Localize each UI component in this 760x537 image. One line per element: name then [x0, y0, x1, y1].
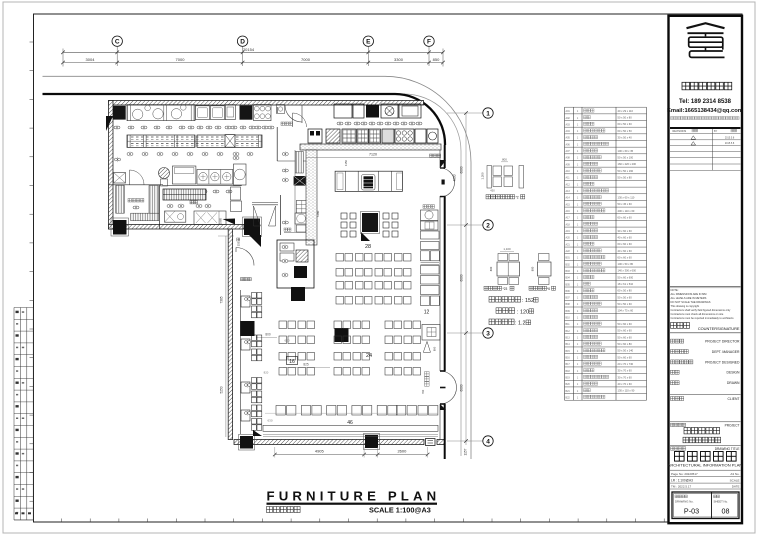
svg-text:30 x 50 x 40: 30 x 50 x 40 [618, 136, 633, 140]
svg-text:50 x 60 x 600: 50 x 60 x 600 [618, 275, 634, 279]
svg-text:100 x 50 x 80: 100 x 50 x 80 [618, 262, 634, 266]
svg-text:A05: A05 [566, 137, 571, 140]
svg-text:NOTE:: NOTE: [671, 288, 679, 292]
svg-text:FURNITURE PLAN: FURNITURE PLAN [267, 488, 441, 503]
svg-text:B05: B05 [566, 283, 571, 286]
svg-text:DESIGN: DESIGN [727, 371, 741, 375]
svg-text:30 x 70 x 60: 30 x 70 x 60 [618, 375, 633, 379]
svg-text:790: 790 [421, 389, 425, 394]
svg-text:46: 46 [347, 420, 353, 426]
svg-text:A02: A02 [566, 117, 571, 120]
svg-text:B07: B07 [566, 297, 571, 300]
svg-text:F: F [427, 39, 431, 46]
svg-text:60 x 50 x 50: 60 x 50 x 50 [618, 129, 633, 133]
svg-text:140 x 300 x 600: 140 x 300 x 600 [618, 269, 637, 273]
svg-text:A19: A19 [566, 230, 571, 233]
svg-text:533: 533 [237, 241, 241, 246]
svg-text:800: 800 [265, 333, 271, 337]
svg-text:LR : 1:100@A3: LR : 1:100@A3 [671, 478, 693, 482]
svg-text:A18: A18 [566, 223, 571, 226]
svg-text:Contractors must check all dim: Contractors must check all dimensions on… [671, 312, 724, 316]
svg-text:16: 16 [289, 359, 295, 365]
svg-text:800: 800 [531, 266, 535, 271]
svg-text:*23: *23 [503, 287, 508, 291]
svg-text:4: 4 [486, 438, 490, 445]
svg-text:4000: 4000 [453, 174, 457, 181]
svg-text:50 x 50 x 140: 50 x 50 x 140 [618, 349, 634, 353]
svg-text:50 x 60 x 60: 50 x 60 x 60 [618, 322, 633, 326]
svg-text:A16: A16 [566, 210, 571, 213]
svg-text:: 1.2: : 1.2 [515, 321, 526, 327]
svg-text:1157: 1157 [464, 448, 468, 455]
svg-text:800: 800 [502, 157, 507, 161]
svg-text:A15: A15 [566, 203, 571, 206]
svg-text:40 x 29 x 110: 40 x 29 x 110 [618, 109, 634, 113]
svg-text:6000: 6000 [460, 274, 464, 281]
svg-text:7385: 7385 [220, 296, 224, 303]
svg-text:REVISIONS: REVISIONS [673, 130, 687, 133]
svg-text:B04: B04 [566, 277, 571, 280]
svg-text:COUNTERSIGNATURE: COUNTERSIGNATURE [698, 326, 740, 331]
svg-text:50 x 50 x 100: 50 x 50 x 100 [618, 156, 634, 160]
svg-text:450: 450 [490, 189, 495, 193]
svg-text:160 x 220 x 200: 160 x 220 x 200 [618, 162, 637, 166]
svg-text:825: 825 [303, 363, 309, 367]
svg-text:DO NOT SCALE THE DRAWINGS: DO NOT SCALE THE DRAWINGS [671, 300, 711, 304]
svg-text:6000: 6000 [460, 384, 464, 391]
svg-text:B13: B13 [566, 337, 571, 340]
svg-text:B09: B09 [566, 310, 571, 313]
svg-text:3300: 3300 [394, 57, 404, 62]
svg-text:B17: B17 [566, 363, 571, 366]
svg-text:B01: B01 [566, 257, 571, 260]
svg-text:DEPT. MANAGER: DEPT. MANAGER [712, 350, 740, 354]
svg-text:*6: *6 [547, 287, 550, 291]
svg-text:50 x 60 x 60: 50 x 60 x 60 [618, 329, 633, 333]
svg-text:60 x 50 x 80: 60 x 50 x 80 [618, 289, 633, 293]
svg-text:1: 1 [486, 110, 490, 117]
svg-text:600: 600 [284, 339, 289, 343]
svg-text:20154: 20154 [243, 47, 255, 52]
svg-text:PROJECT DESIGNED: PROJECT DESIGNED [705, 360, 740, 364]
svg-text:*2: *2 [516, 196, 519, 200]
svg-text:130 x 60 x 110: 130 x 60 x 110 [618, 195, 635, 199]
svg-text:800: 800 [489, 266, 493, 271]
svg-text:50 x 50 x 60: 50 x 50 x 60 [618, 302, 633, 306]
svg-text:630: 630 [267, 419, 272, 423]
svg-text:A3 No.: A3 No. [730, 472, 739, 476]
svg-text:BY: BY [714, 130, 718, 133]
svg-text:50 x 50 x 80: 50 x 50 x 80 [618, 176, 633, 180]
svg-text:40 x 70 x 60: 40 x 70 x 60 [618, 382, 633, 386]
svg-text:60 x 60 x 60: 60 x 60 x 60 [618, 255, 633, 259]
svg-text:SCALE: SCALE [730, 478, 740, 482]
svg-text:1150: 1150 [344, 160, 348, 166]
svg-text:Page No: 20220517: Page No: 20220517 [671, 472, 698, 476]
svg-text:DRAWING TITLE: DRAWING TITLE [715, 447, 740, 451]
svg-text:B02: B02 [566, 263, 571, 266]
svg-text:7120: 7120 [369, 153, 377, 157]
svg-text:A22: A22 [566, 250, 571, 253]
svg-text:2015.5.8: 2015.5.8 [725, 136, 735, 139]
svg-text:40 x 60 x 60: 40 x 60 x 60 [618, 235, 633, 239]
svg-text:Tel: 189 2314 8538: Tel: 189 2314 8538 [679, 99, 732, 105]
svg-text:12: 12 [424, 310, 430, 316]
svg-text:B03: B03 [566, 270, 571, 273]
svg-text:B12: B12 [566, 330, 571, 333]
svg-text:PROJECT: PROJECT [725, 423, 740, 427]
svg-text:60 x 50 x 60: 60 x 50 x 60 [618, 122, 633, 126]
svg-text:50 x 60 x 80: 50 x 60 x 80 [618, 342, 633, 346]
svg-text:A21: A21 [566, 243, 571, 246]
svg-text:B19: B19 [566, 377, 571, 380]
svg-text:820: 820 [264, 371, 269, 375]
svg-text:B10: B10 [566, 317, 571, 320]
svg-text:A01: A01 [566, 110, 571, 113]
svg-text:B21: B21 [566, 390, 571, 393]
svg-text:104 x 73 x 60: 104 x 73 x 60 [618, 309, 634, 313]
svg-text:B08: B08 [566, 303, 571, 306]
svg-text:60 x 60 x 60: 60 x 60 x 60 [618, 242, 633, 246]
svg-text:100 x 60 x 35: 100 x 60 x 35 [618, 149, 634, 153]
svg-text:DATE: DATE [732, 485, 740, 489]
svg-text:B14: B14 [566, 343, 571, 346]
svg-text:A09: A09 [566, 163, 571, 166]
svg-text:A06: A06 [566, 143, 571, 146]
svg-text:D: D [240, 39, 245, 46]
svg-text:B11: B11 [566, 323, 571, 326]
svg-text:60 x 60 x 60: 60 x 60 x 60 [618, 215, 633, 219]
svg-text:B06: B06 [566, 290, 571, 293]
svg-text:1,100: 1,100 [503, 247, 511, 251]
svg-text:4905: 4905 [315, 448, 325, 453]
svg-text:A08: A08 [566, 157, 571, 160]
svg-text:2: 2 [486, 222, 490, 229]
svg-text:A12: A12 [566, 183, 571, 186]
svg-text:2015.5.8: 2015.5.8 [725, 142, 735, 145]
svg-text:850: 850 [433, 57, 440, 62]
svg-text:TM : 2022.5.17: TM : 2022.5.17 [671, 485, 692, 489]
svg-text:50 x 50 x 60: 50 x 50 x 60 [618, 295, 633, 299]
svg-text:50 x 50 x 160: 50 x 50 x 160 [618, 169, 634, 173]
svg-text:This drawing is copyright: This drawing is copyright [671, 304, 700, 308]
svg-text:1,200: 1,200 [481, 172, 485, 179]
svg-text:A11: A11 [566, 177, 571, 180]
svg-text:50 x 50 x 80: 50 x 50 x 80 [618, 116, 633, 120]
svg-text:SHEET No.: SHEET No. [714, 499, 729, 503]
svg-text:P-03: P-03 [684, 507, 699, 516]
svg-text:3004: 3004 [86, 57, 96, 62]
svg-text:: 152: : 152 [522, 298, 534, 304]
svg-text:CLIENT: CLIENT [727, 397, 739, 401]
svg-text:28: 28 [365, 244, 371, 250]
svg-text:50 x 60 x 60: 50 x 60 x 60 [618, 335, 633, 339]
svg-text:30 x 60 x 60: 30 x 60 x 60 [618, 229, 633, 233]
svg-text:A17: A17 [566, 217, 571, 220]
svg-text:ALL DIMENSIONS ARE IN MM: ALL DIMENSIONS ARE IN MM [671, 292, 707, 296]
svg-text:A13: A13 [566, 190, 571, 193]
svg-text:50 x 60 x 60: 50 x 60 x 60 [618, 355, 633, 359]
svg-text:DRAWN: DRAWN [727, 381, 740, 385]
svg-text:6000: 6000 [460, 166, 464, 173]
svg-text:2600: 2600 [397, 448, 407, 453]
svg-text:Contractors shall verify field: Contractors shall verify field figured d… [671, 308, 732, 312]
svg-text:3: 3 [486, 330, 490, 337]
svg-text:08: 08 [722, 507, 730, 516]
svg-text:ALL LEVELS ARE IN METERS: ALL LEVELS ARE IN METERS [671, 296, 707, 300]
svg-text:40 x 60 x 60: 40 x 60 x 60 [618, 249, 633, 253]
svg-text:7000: 7000 [301, 57, 311, 62]
svg-text:A10: A10 [566, 170, 571, 173]
svg-text:C: C [115, 39, 120, 46]
svg-text:Email:1665138434@qq.com: Email:1665138434@qq.com [667, 108, 743, 114]
svg-text:PROJECT DIRECTOR: PROJECT DIRECTOR [705, 340, 740, 344]
svg-text:ARCHITECTURAL INFORMATION PLAN: ARCHITECTURAL INFORMATION PLAN [668, 462, 743, 467]
svg-text:B20: B20 [566, 383, 571, 386]
svg-text:: 120: : 120 [517, 309, 529, 315]
svg-text:B15: B15 [566, 350, 571, 353]
svg-text:30 x 70 x 60: 30 x 70 x 60 [618, 369, 633, 373]
svg-text:A04: A04 [566, 130, 571, 133]
svg-text:20 x 70 x 730: 20 x 70 x 730 [618, 362, 634, 366]
svg-text:A14: A14 [566, 197, 571, 200]
svg-text:A07: A07 [566, 150, 571, 153]
svg-text:5250: 5250 [220, 386, 224, 393]
svg-text:B22: B22 [566, 396, 571, 399]
svg-text:B18: B18 [566, 370, 571, 373]
svg-text:400 x 110 x 60: 400 x 110 x 60 [618, 209, 635, 213]
svg-text:B16: B16 [566, 357, 571, 360]
svg-text:A20: A20 [566, 237, 571, 240]
svg-text:E: E [366, 39, 371, 46]
svg-text:DRAWING No.: DRAWING No. [675, 499, 694, 503]
svg-text:50 x 45 x 60: 50 x 45 x 60 [618, 202, 633, 206]
svg-text:7000: 7000 [176, 57, 186, 62]
svg-text:130 x 110 x 90: 130 x 110 x 90 [618, 389, 635, 393]
svg-text:Contractors must be reported i: Contractors must be reported immediately… [671, 316, 735, 320]
svg-text:SCALE 1:100@A3: SCALE 1:100@A3 [369, 506, 431, 515]
svg-text:600: 600 [433, 346, 437, 351]
svg-text:A03: A03 [566, 123, 571, 126]
svg-text:24: 24 [366, 353, 372, 359]
svg-text:18 x 61 x 510: 18 x 61 x 510 [618, 282, 634, 286]
